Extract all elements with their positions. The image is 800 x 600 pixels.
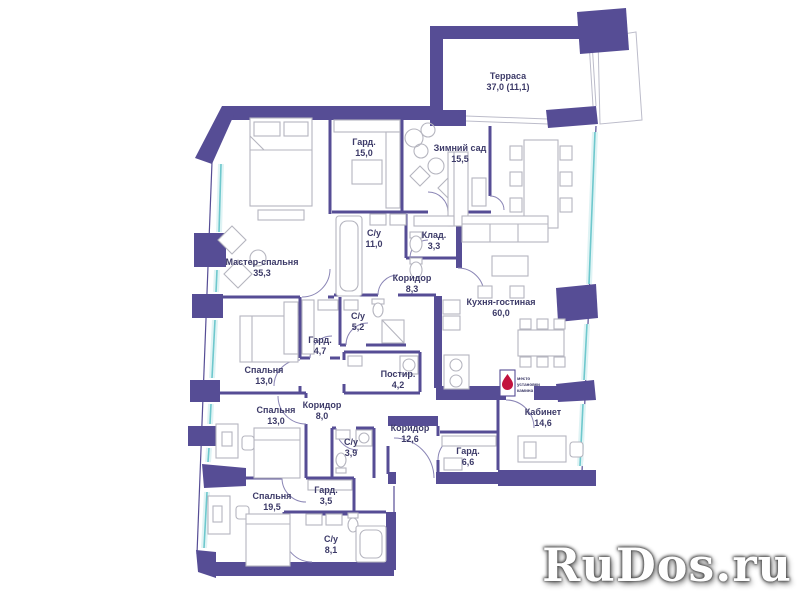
bedroom-13a-furniture bbox=[240, 302, 298, 362]
room-label-bathroom-81: С/у8,1 bbox=[324, 534, 338, 557]
fireplace-note: место установки камина bbox=[517, 376, 540, 394]
room-label-bedroom-195: Спальня19,5 bbox=[253, 491, 292, 514]
room-label-bathroom-11: С/у11,0 bbox=[365, 228, 382, 251]
room-label-bathroom-39: С/у3,9 bbox=[344, 437, 358, 460]
room-label-corridor-126: Коридор12,6 bbox=[391, 423, 430, 446]
wardrobe-15-shelves bbox=[334, 120, 400, 208]
room-label-corridor-80: Коридор8,0 bbox=[303, 400, 342, 423]
fireplace-icon bbox=[500, 370, 515, 396]
storage-shelf bbox=[414, 216, 454, 226]
room-label-wardrobe-35: Гард.3,5 bbox=[314, 485, 337, 508]
room-label-master-bedroom: Мастер-спальня35,3 bbox=[226, 257, 299, 280]
room-label-wardrobe-47: Гард.4,7 bbox=[308, 335, 331, 358]
floor-plan-page: Терраса37,0 (11,1) Гард.15,0 Зимний сад1… bbox=[0, 0, 800, 600]
room-label-winter-garden: Зимний сад15,5 bbox=[434, 143, 487, 166]
room-label-storage: Клад.3,3 bbox=[422, 230, 446, 253]
room-label-office: Кабинет14,6 bbox=[525, 407, 561, 430]
room-label-terrace: Терраса37,0 (11,1) bbox=[486, 71, 529, 94]
room-label-laundry: Постир.4,2 bbox=[381, 369, 416, 392]
rudos-watermark: RuDos.ru bbox=[542, 538, 792, 592]
room-label-corridor-83: Коридор8,3 bbox=[393, 273, 432, 296]
room-label-wardrobe-15: Гард.15,0 bbox=[352, 137, 375, 160]
office-furniture bbox=[518, 436, 583, 462]
room-label-bedroom-13a: Спальня13,0 bbox=[245, 365, 284, 388]
room-label-bedroom-13b: Спальня13,0 bbox=[257, 405, 296, 428]
room-label-bathroom-52: С/у5,2 bbox=[351, 311, 365, 334]
room-label-wardrobe-66: Гард.6,6 bbox=[456, 446, 479, 469]
floor-plan-drawing bbox=[0, 0, 800, 600]
bathroom-81-fixtures bbox=[306, 513, 386, 562]
master-bed bbox=[250, 118, 312, 220]
room-label-kitchen-living: Кухня-гостиная60,0 bbox=[467, 297, 536, 320]
